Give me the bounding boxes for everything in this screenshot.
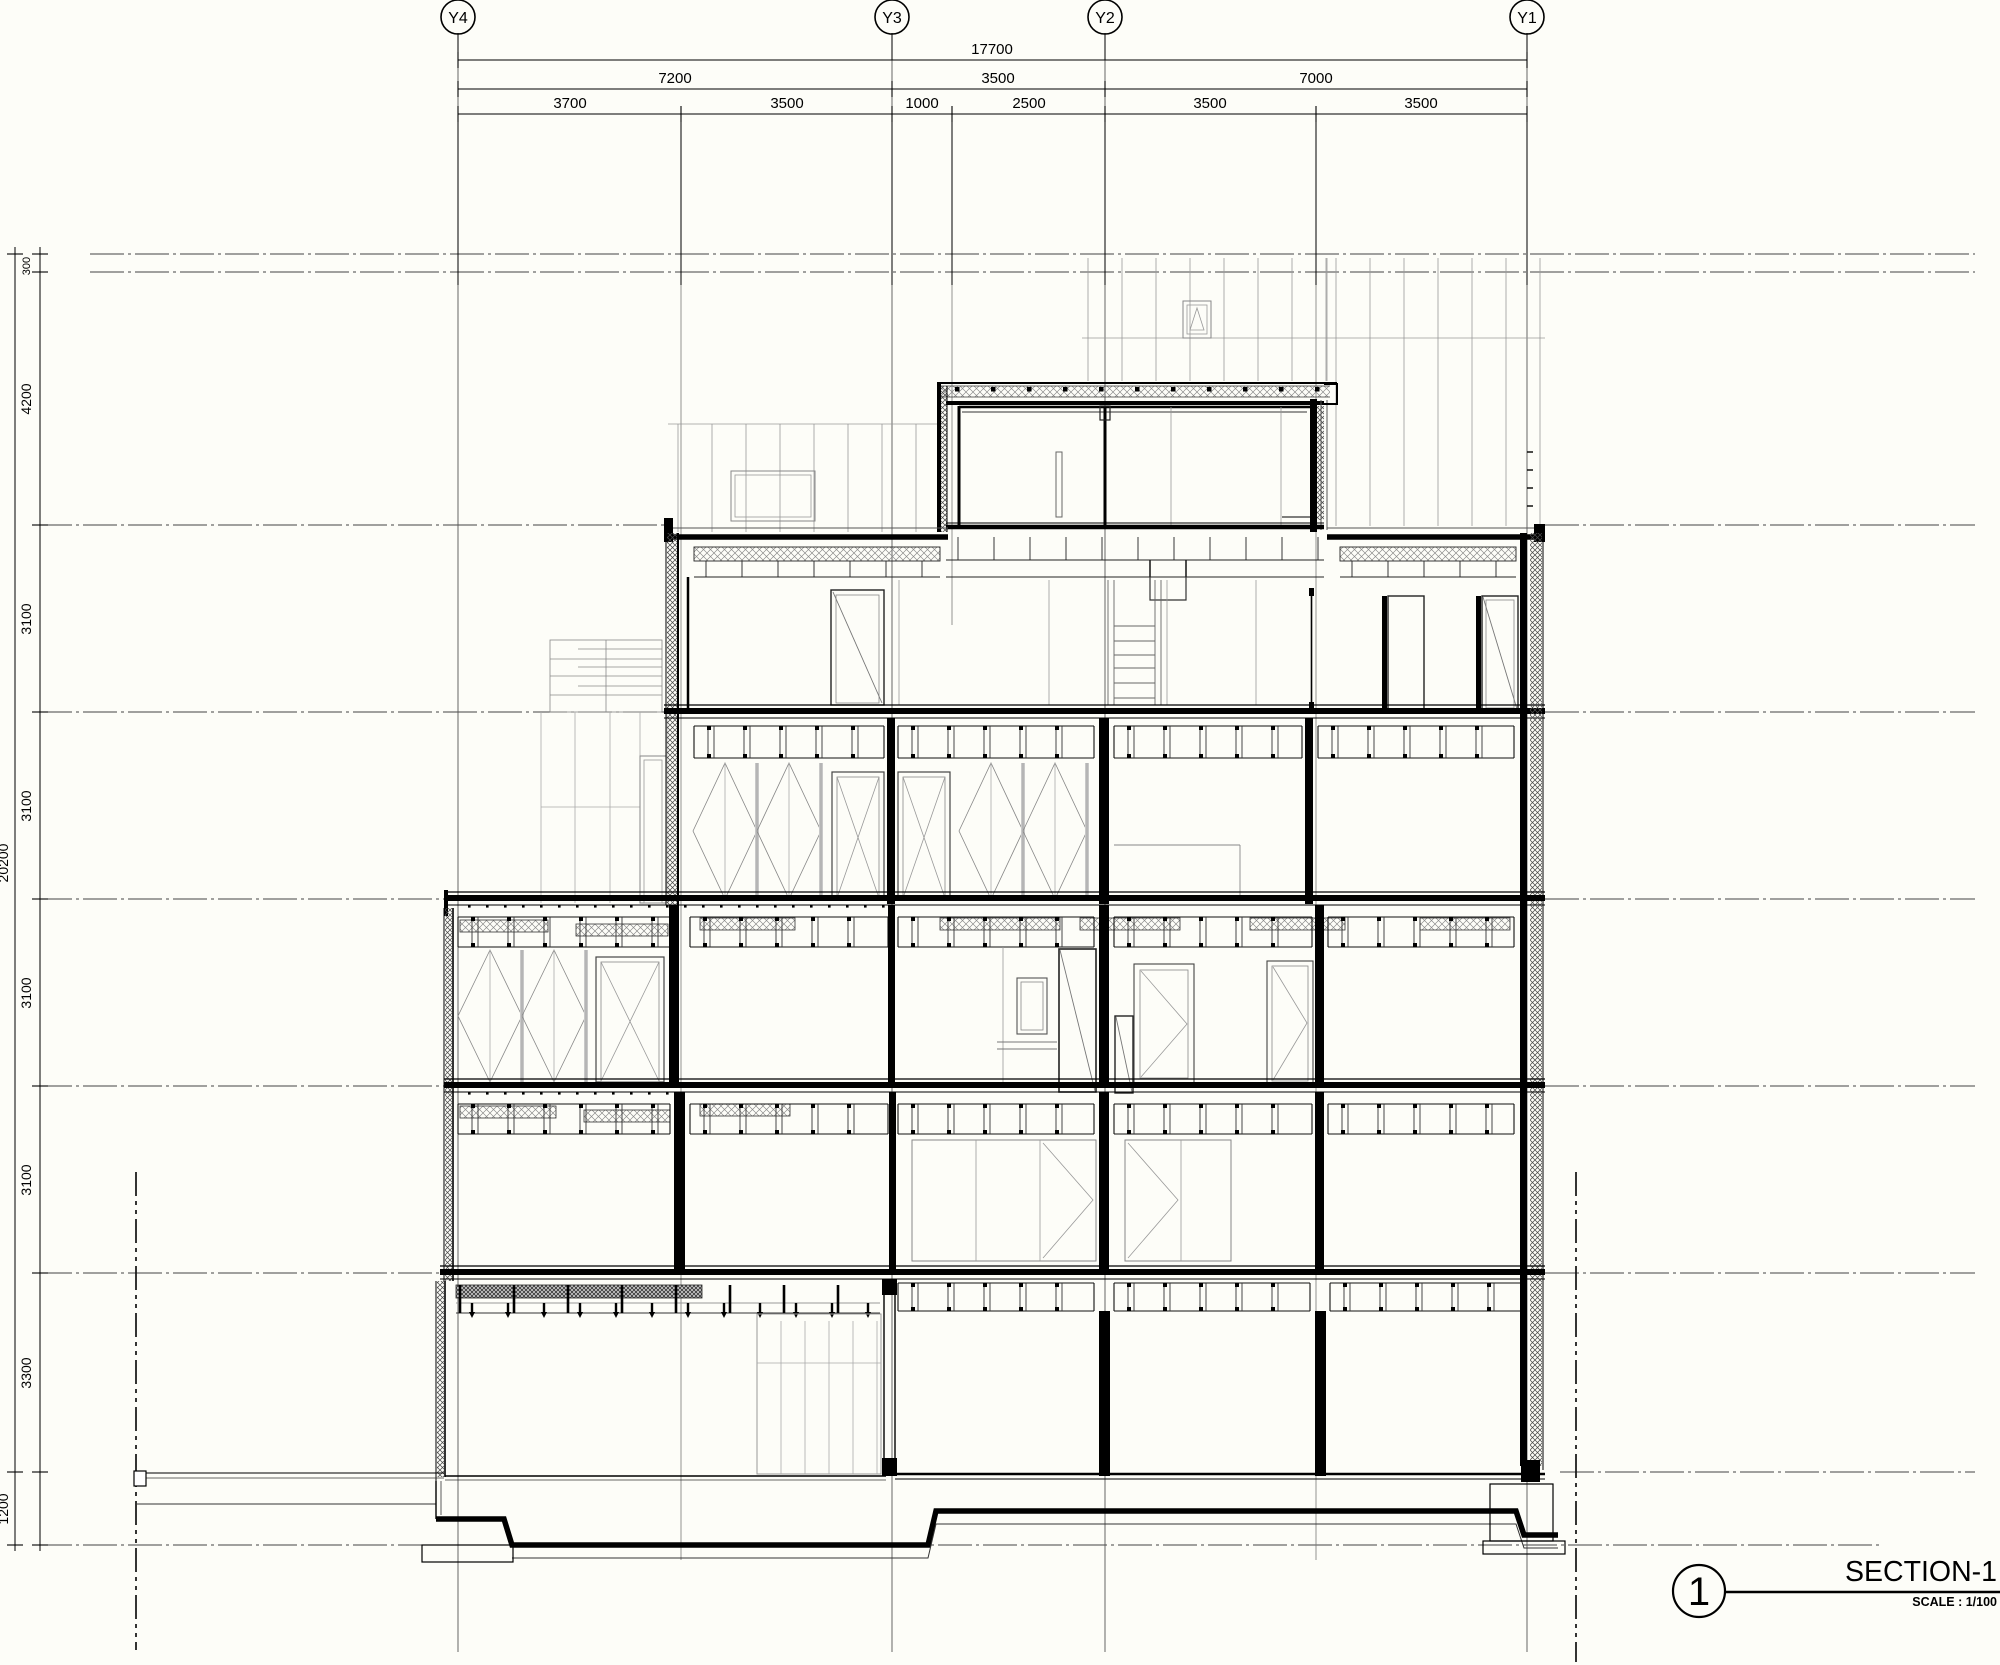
- svg-text:Y1: Y1: [1517, 10, 1537, 27]
- svg-text:3700: 3700: [553, 95, 586, 112]
- svg-text:SCALE : 1/100: SCALE : 1/100: [1912, 1595, 1997, 1609]
- svg-text:7200: 7200: [658, 70, 691, 87]
- svg-text:20200: 20200: [0, 843, 11, 882]
- svg-text:Y3: Y3: [882, 10, 902, 27]
- svg-text:3100: 3100: [18, 603, 34, 634]
- svg-text:7000: 7000: [1299, 70, 1332, 87]
- svg-text:SECTION-1: SECTION-1: [1845, 1556, 1997, 1588]
- svg-text:3500: 3500: [1193, 95, 1226, 112]
- svg-text:1: 1: [1688, 1570, 1710, 1614]
- svg-text:3500: 3500: [981, 70, 1014, 87]
- svg-text:17700: 17700: [971, 41, 1013, 58]
- svg-text:300: 300: [21, 257, 33, 275]
- svg-text:4200: 4200: [18, 383, 34, 414]
- svg-text:Y4: Y4: [448, 10, 468, 27]
- svg-text:1200: 1200: [0, 1493, 11, 1524]
- svg-text:Y2: Y2: [1095, 10, 1115, 27]
- svg-text:1000: 1000: [905, 95, 938, 112]
- svg-text:3100: 3100: [18, 790, 34, 821]
- svg-text:3100: 3100: [18, 977, 34, 1008]
- svg-text:2500: 2500: [1012, 95, 1045, 112]
- svg-text:3500: 3500: [770, 95, 803, 112]
- svg-text:3300: 3300: [18, 1357, 34, 1388]
- svg-text:3500: 3500: [1404, 95, 1437, 112]
- svg-text:3100: 3100: [18, 1164, 34, 1195]
